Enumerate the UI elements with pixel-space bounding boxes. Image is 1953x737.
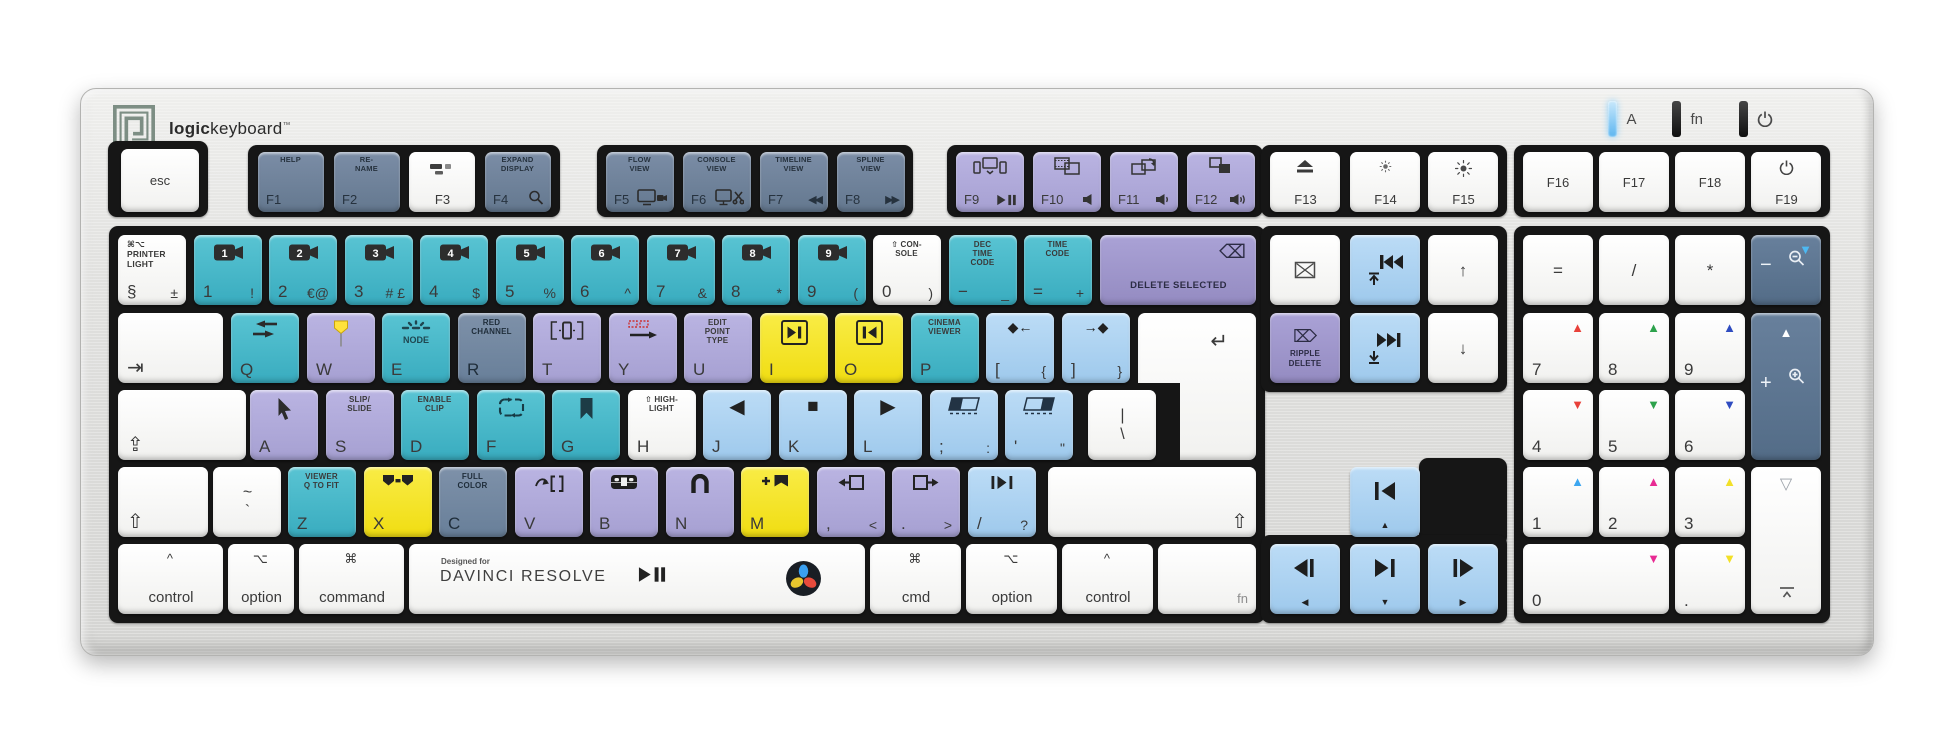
key-minus: DECTIMECODE−_ [949, 235, 1017, 305]
key-shift-label: ( [853, 286, 858, 300]
key-top-label: ⌘ [302, 552, 400, 567]
f13-eject-icon [1270, 160, 1340, 173]
key-top-label: ^ [1065, 552, 1149, 567]
key-q: Q [231, 313, 299, 383]
key-main-label: F18 [1699, 176, 1721, 189]
davinci-resolve-label: DAVINCI RESOLVE [440, 568, 607, 586]
key-x: X [364, 467, 432, 537]
f5-moncam-icon [637, 189, 667, 206]
key-page-up: ↑ [1428, 235, 1498, 305]
key-main-label: ' [1014, 438, 1017, 455]
key-main-label: option [992, 590, 1033, 605]
key-shift-label: : [986, 441, 990, 455]
key-main-label: * [1707, 262, 1714, 279]
key-main-label: H [637, 438, 649, 455]
key-main-label: F6 [691, 193, 706, 206]
key-c: FULLCOLORC [439, 467, 507, 537]
arrow-up-upedit-icon [1350, 480, 1420, 502]
key-control-left: ^control [118, 544, 223, 614]
numpad-plus-zoom-in-magplus-icon [1788, 368, 1805, 385]
numpad-enter-entersym-icon [1760, 586, 1813, 599]
key-ripple-delete: ⌦RIPPLEDELETE [1270, 313, 1340, 383]
key-main-label: Q [240, 361, 253, 378]
logo-wordmark: logickeyboard™ [169, 119, 291, 139]
key-main-label: = [1553, 262, 1563, 279]
svg-text:7: 7 [674, 248, 680, 260]
triangle-marker-icon: ▼ [1571, 398, 1584, 411]
key-a: A [250, 390, 318, 460]
key-top-label: HELP [261, 156, 320, 165]
w-flagy-icon [307, 320, 375, 348]
key-main-label: command [319, 590, 385, 605]
f15-sun-icon [1428, 160, 1498, 177]
triangle-marker-icon: ▶ [1428, 598, 1498, 607]
key-shift-label: { [1041, 364, 1046, 378]
triangle-marker-icon: ▲ [1571, 321, 1584, 334]
f10-vol0-icon [1082, 193, 1094, 206]
key-shift-label: + [1076, 286, 1084, 300]
fn-led [1672, 101, 1681, 137]
key-f8: SPLINEVIEWF8▶▶ [837, 152, 905, 212]
key-space: Designed forDAVINCI RESOLVE [409, 544, 865, 614]
4-cam-icon: 4 [420, 242, 488, 265]
caps-lock-indicator-label: A [1626, 111, 1636, 128]
nav-blank-boxx-icon [1294, 261, 1316, 279]
key-f9: F9 [956, 152, 1024, 212]
key-esc: esc [121, 149, 199, 212]
6-cam-icon: 6 [571, 242, 639, 265]
triangle-marker-icon: ▲ [1350, 521, 1420, 530]
triangle-marker-icon: ▲ [1723, 321, 1736, 334]
key-main-label: 6 [1684, 438, 1693, 455]
key-d: ENABLECLIPD [401, 390, 469, 460]
key-3: 33# £ [345, 235, 413, 305]
key-main-label: 4 [429, 283, 438, 300]
key-main-label: N [675, 515, 687, 532]
t-trim-icon [533, 320, 601, 341]
key-main-label: § [127, 283, 136, 300]
key-f11: F11 [1110, 152, 1178, 212]
quote-clipr-icon [1005, 397, 1073, 416]
key-main-label: F15 [1452, 193, 1474, 206]
key-f1: HELPF1 [258, 152, 324, 212]
key-o: O [835, 313, 903, 383]
key-command-right: ⌘cmd [870, 544, 961, 614]
key-shift-label: \ [1120, 427, 1124, 443]
key-main-label: F8 [845, 193, 860, 206]
key-main-label: [ [995, 361, 1000, 378]
key-main-label: E [391, 361, 402, 378]
key-main-label: F10 [1041, 193, 1063, 206]
key-s: SLIP/SLIDES [326, 390, 394, 460]
key-shift-label: # £ [386, 286, 405, 300]
key-bracket-right: →◆]} [1062, 313, 1130, 383]
key-caps-lock: ⇪ [118, 390, 246, 460]
f7-rew-icon: ◀◀ [808, 195, 821, 206]
power-led [1739, 101, 1748, 137]
key-main-label: 3 [354, 283, 363, 300]
key-g: G [552, 390, 620, 460]
f11-rotatefr-icon [1110, 157, 1178, 176]
key-main-label: esc [150, 174, 170, 187]
key-main-label: J [712, 438, 721, 455]
key-numpad-multiply: * [1675, 235, 1745, 305]
key-main-label: F14 [1374, 193, 1396, 206]
key-main-label: 7 [656, 283, 665, 300]
key-i: I [760, 313, 828, 383]
key-main-label: ] [1071, 361, 1076, 378]
b-razor-icon [590, 474, 658, 490]
svg-text:5: 5 [523, 248, 529, 260]
home-skipstart-icon [1366, 254, 1404, 286]
key-main-label: 4 [1532, 438, 1541, 455]
key-numpad-8: ▲8 [1599, 313, 1669, 383]
ripple-delete-delfwd-icon: ⌦ [1293, 328, 1317, 345]
key-main-label: 5 [505, 283, 514, 300]
key-main-label: W [316, 361, 332, 378]
key-main-label: ; [939, 438, 944, 455]
key-main-label: F19 [1775, 193, 1797, 206]
key-main-label: 0 [1532, 592, 1541, 609]
key-slash: /? [968, 467, 1036, 537]
key-main-label: B [599, 515, 610, 532]
key-main-label: . [901, 515, 906, 532]
key-main-label: O [844, 361, 857, 378]
f9-devices-icon [956, 157, 1024, 175]
o-markout-icon [835, 320, 903, 345]
m-addflag-icon [741, 474, 809, 493]
key-command-left: ⌘command [299, 544, 404, 614]
key-numpad-9: ▲9 [1675, 313, 1745, 383]
key-end [1350, 313, 1420, 383]
key-numpad-1: ▲1 [1523, 467, 1593, 537]
key-main-label: F3 [435, 193, 450, 206]
key-shift-label: % [544, 286, 556, 300]
triangle-marker-icon: ▼ [1647, 552, 1660, 565]
key-main-label: control [1085, 590, 1130, 605]
key-main-label: I [769, 361, 774, 378]
v-paste-icon [515, 474, 583, 493]
key-main-label: 8 [1608, 361, 1617, 378]
f3-missionctl-icon [409, 160, 475, 175]
key-k: ■K [779, 390, 847, 460]
key-top-label: CINEMAVIEWER [914, 318, 975, 336]
key-backtick: ~` [213, 467, 281, 537]
key-main-label: ⇧ [1231, 512, 1248, 532]
key-tab: ⇥ [118, 313, 223, 383]
key-main-label: F7 [768, 193, 783, 206]
key-main-label: F4 [493, 193, 508, 206]
triangle-marker-icon: ▲ [1571, 475, 1584, 488]
key-main-label: F12 [1195, 193, 1217, 206]
f19-power-icon [1751, 160, 1821, 175]
key-0: ⇧ CON-SOLE0) [873, 235, 941, 305]
svg-text:8: 8 [749, 248, 755, 260]
play-pause-icon [637, 566, 667, 588]
key-y: Y [609, 313, 677, 383]
key-numpad-divide: / [1599, 235, 1669, 305]
key-main-label: 2 [1608, 515, 1617, 532]
key-f: F [477, 390, 545, 460]
key-z: VIEWERQ TO FITZ [288, 467, 356, 537]
comma-boxl-icon [817, 474, 885, 491]
key-shift-label: < [869, 518, 877, 532]
key-main-label: 3 [1684, 515, 1693, 532]
f-loop-icon [477, 397, 545, 418]
key-shift-label: $ [472, 286, 480, 300]
key-main-label: 0 [882, 283, 891, 300]
key-main-label: 8 [731, 283, 740, 300]
key-f14: F14 [1350, 152, 1420, 212]
e-node-icon: NODE [382, 320, 450, 347]
key-1: 11! [194, 235, 262, 305]
f9-playpause-icon [996, 194, 1017, 206]
key-main-label: ↓ [1459, 340, 1468, 357]
key-shift-right: ⇧ [1048, 467, 1256, 537]
f12-vol2-icon [1229, 193, 1248, 206]
key-f3: F3 [409, 152, 475, 212]
key-f19: F19 [1751, 152, 1821, 212]
key-v: V [515, 467, 583, 537]
key-main-label: U [693, 361, 705, 378]
key-main-label: S [335, 438, 346, 455]
l-trir-icon: ▶ [854, 397, 922, 417]
key-main-label: , [826, 515, 831, 532]
key-delete-selected: ⌫DELETE SELECTED [1100, 235, 1256, 305]
2-cam-icon: 2 [269, 242, 337, 265]
key-top-label: RIPPLEDELETE [1289, 349, 1322, 367]
key-main-label: − [1760, 255, 1772, 275]
key-top-label: TIMECODE [1027, 240, 1088, 258]
indicator-leds: A fn [1608, 101, 1773, 137]
key-shift-label: €@ [307, 286, 329, 300]
key-top-label: FLOWVIEW [609, 156, 670, 173]
triangle-marker-icon: ▲ [1647, 321, 1660, 334]
key-main-label: + [1760, 373, 1772, 393]
key-numpad-plus-zoom-in: ▲+ [1751, 313, 1821, 460]
key-main-label: 5 [1608, 438, 1617, 455]
key-shift-label: } [1117, 364, 1122, 378]
arrow-down-downedit-icon [1350, 557, 1420, 579]
key-f17: F17 [1599, 152, 1669, 212]
key-quote: '" [1005, 390, 1073, 460]
key-numpad-minus-zoom-out: ▼− [1751, 235, 1821, 305]
y-append-icon [609, 320, 677, 341]
q-arrlr-icon [231, 320, 299, 339]
key-top-label: ⌥ [231, 552, 290, 567]
3-cam-icon: 3 [345, 242, 413, 265]
key-top-label: ENABLECLIP [404, 395, 465, 413]
key-main-label: fn [1237, 592, 1248, 605]
key-shift-left: ⇧ [118, 467, 208, 537]
triangle-marker-icon: ▲ [1647, 475, 1660, 488]
key-main-label: ⇥ [127, 358, 144, 378]
key-f12: F12 [1187, 152, 1255, 212]
key-f7: TIMELINEVIEWF7◀◀ [760, 152, 828, 212]
key-j: ◀J [703, 390, 771, 460]
key-main-label: F5 [614, 193, 629, 206]
key-main-label: F17 [1623, 176, 1645, 189]
key-shift-label: > [944, 518, 952, 532]
triangle-marker-icon: ▼ [1723, 552, 1736, 565]
key-main-label: option [241, 590, 282, 605]
power-indicator-icon [1757, 111, 1773, 127]
fn-indicator-label: fn [1690, 111, 1703, 128]
key-numpad-2: ▲2 [1599, 467, 1669, 537]
key-arrow-right: ▶ [1428, 544, 1498, 614]
key-top-label: SLIP/SLIDE [329, 395, 390, 413]
key-home [1350, 235, 1420, 305]
a-pointer-icon [250, 397, 318, 422]
key-top-label: VIEWERQ TO FIT [291, 472, 352, 490]
arrow-left-leftfr-icon [1270, 557, 1340, 579]
triangle-marker-icon: ▼ [1723, 398, 1736, 411]
triangle-marker-icon: ◀ [1270, 598, 1340, 607]
delete-selected-bksp-icon: ⌫ [1219, 243, 1246, 262]
key-page-down: ↓ [1428, 313, 1498, 383]
key-pipe: |\ [1088, 390, 1156, 460]
key-r: REDCHANNELR [458, 313, 526, 383]
svg-text:6: 6 [598, 248, 604, 260]
key-main-label: D [410, 438, 422, 455]
key-arrow-up: ▲ [1350, 467, 1420, 537]
numpad-minus-zoom-out-magminus-icon [1788, 250, 1805, 267]
key-7: 77& [647, 235, 715, 305]
n-magnet-icon [666, 474, 734, 495]
key-shift-label: ± [170, 286, 178, 300]
key-top-label: ⇧ HIGH-LIGHT [631, 395, 692, 413]
key-numpad-7: ▲7 [1523, 313, 1593, 383]
svg-text:2: 2 [296, 248, 302, 260]
key-main-label: 2 [278, 283, 287, 300]
key-t: T [533, 313, 601, 383]
key-e: NODEE [382, 313, 450, 383]
key-main-label: L [863, 438, 872, 455]
key-f15: F15 [1428, 152, 1498, 212]
key-main-label: F11 [1118, 193, 1139, 206]
key-top-label: DECTIMECODE [952, 240, 1013, 268]
key-numpad-3: ▲3 [1675, 467, 1745, 537]
davinci-resolve-logo [785, 560, 822, 602]
key-main-label: V [524, 515, 535, 532]
key-top-label: ^ [121, 552, 219, 567]
key-f10: F10 [1033, 152, 1101, 212]
key-main-label: F [486, 438, 496, 455]
key-arrow-down: ▼ [1350, 544, 1420, 614]
key-f13: F13 [1270, 152, 1340, 212]
key-main-label: ↵ [1210, 331, 1228, 352]
key-main-label: F1 [266, 193, 281, 206]
key-f5: FLOWVIEWF5 [606, 152, 674, 212]
svg-text:NODE: NODE [403, 335, 429, 345]
key-main-label: F16 [1547, 176, 1569, 189]
f14-sundim-icon [1350, 160, 1420, 173]
key-l: ▶L [854, 390, 922, 460]
key-top-label: RE-NAME [337, 156, 396, 173]
key-main-label: control [148, 590, 193, 605]
key-shift-label: _ [1001, 286, 1009, 300]
key-fn: fn [1158, 544, 1256, 614]
svg-text:1: 1 [221, 248, 227, 260]
key-main-label: F9 [964, 193, 979, 206]
key-main-label: R [467, 361, 479, 378]
key-main-label: Y [618, 361, 629, 378]
triangle-marker-icon: ▲ [1723, 475, 1736, 488]
key-option-left: ⌥option [228, 544, 294, 614]
key-top-label: ⌘⌥PRINTERLIGHT [127, 240, 182, 269]
key-6: 66^ [571, 235, 639, 305]
key-9: 99( [798, 235, 866, 305]
9-cam-icon: 9 [798, 242, 866, 265]
semicolon-clipl-icon [930, 397, 998, 416]
j-tril-icon: ◀ [703, 397, 771, 417]
key-group-bezel [1419, 458, 1507, 546]
key-f2: RE-NAMEF2 [334, 152, 400, 212]
key-shift-label: ! [250, 286, 254, 300]
key-main-label: ~ [243, 485, 252, 501]
key-equals: TIMECODE=+ [1024, 235, 1092, 305]
key-top-label: ⇧ CON-SOLE [876, 240, 937, 258]
key-8: 88* [722, 235, 790, 305]
key-top-label: FULLCOLOR [442, 472, 503, 490]
slash-step-icon [968, 474, 1036, 491]
7-cam-icon: 7 [647, 242, 715, 265]
key-n: N [666, 467, 734, 537]
5-cam-icon: 5 [496, 242, 564, 265]
key-numpad-6: ▼6 [1675, 390, 1745, 460]
bracket-right-diamr-icon: →◆ [1062, 320, 1130, 334]
key-main-label: F13 [1294, 193, 1316, 206]
key-numpad-4: ▼4 [1523, 390, 1593, 460]
key-shift-label: " [1060, 441, 1065, 455]
key-main-label: 9 [807, 283, 816, 300]
key-main-label: C [448, 515, 460, 532]
key-bracket-left: ◆←[{ [986, 313, 1054, 383]
key-numpad-enter: ▽ [1751, 467, 1821, 614]
key-numpad-0: ▼0 [1523, 544, 1669, 614]
key-f18: F18 [1675, 152, 1745, 212]
key-top-label: EDITPOINTTYPE [687, 318, 748, 346]
key-main-label: X [373, 515, 384, 532]
key-2: 22€@ [269, 235, 337, 305]
key-shift-label: ^ [624, 286, 631, 300]
key-main-label: F2 [342, 193, 357, 206]
key-main-label: cmd [902, 590, 930, 605]
key-p: CINEMAVIEWERP [911, 313, 979, 383]
key-main-label: 9 [1684, 361, 1693, 378]
key-f4: EXPANDDISPLAYF4 [485, 152, 551, 212]
key-numpad-5: ▼5 [1599, 390, 1669, 460]
key-main-label: P [920, 361, 931, 378]
triangle-marker-icon: ▼ [1647, 398, 1660, 411]
key-control-right: ^control [1062, 544, 1153, 614]
key-shift-label: ` [245, 504, 250, 520]
f12-cascadefr-icon [1187, 157, 1255, 175]
key-main-label: / [977, 515, 982, 532]
key-printer-light: ⌘⌥PRINTERLIGHT§± [118, 235, 186, 305]
key-b: B [590, 467, 658, 537]
caps-lock-led [1608, 101, 1617, 137]
key-u: EDITPOINTTYPEU [684, 313, 752, 383]
key-option-right: ⌥option [966, 544, 1057, 614]
key-main-label: = [1033, 283, 1043, 300]
key-top-label: SPLINEVIEW [840, 156, 901, 173]
key-top-label: CONSOLEVIEW [686, 156, 747, 173]
key-top-label: TIMELINEVIEW [763, 156, 824, 173]
key-comma: ,< [817, 467, 885, 537]
f11-vol1-icon [1155, 193, 1171, 206]
key-nav-blank [1270, 235, 1340, 305]
